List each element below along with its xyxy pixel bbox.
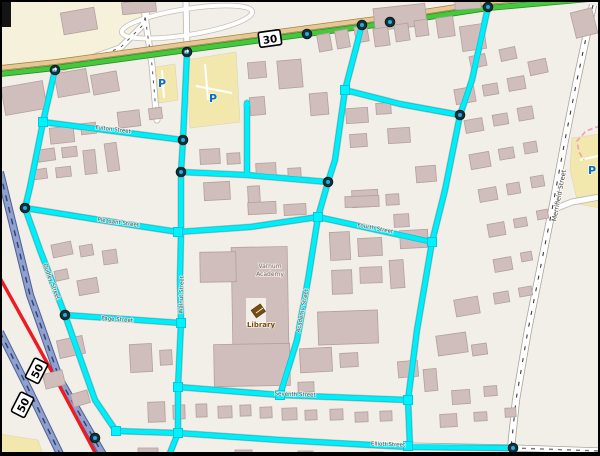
building bbox=[49, 126, 75, 144]
route-vertex-square[interactable] bbox=[174, 228, 183, 237]
building bbox=[388, 127, 411, 143]
building bbox=[330, 409, 343, 420]
building bbox=[436, 16, 456, 38]
building bbox=[394, 23, 410, 42]
building bbox=[129, 343, 152, 372]
building bbox=[148, 107, 162, 120]
building bbox=[200, 148, 221, 164]
library-label: Library bbox=[247, 321, 275, 329]
building bbox=[358, 237, 383, 256]
building bbox=[284, 203, 307, 215]
building bbox=[345, 195, 379, 207]
building bbox=[493, 291, 510, 304]
route-node-core[interactable] bbox=[23, 206, 27, 210]
route-node-core[interactable] bbox=[511, 446, 515, 450]
building bbox=[506, 182, 521, 195]
route-node-core[interactable] bbox=[360, 23, 364, 27]
map-viewport[interactable]: Fulton StreetPleasant StreetPage StreetW… bbox=[0, 0, 600, 456]
building bbox=[469, 151, 491, 169]
building bbox=[523, 141, 538, 154]
building bbox=[507, 76, 526, 92]
building bbox=[355, 412, 368, 422]
building bbox=[90, 71, 119, 95]
building bbox=[520, 251, 532, 262]
route-vertex-square[interactable] bbox=[341, 86, 350, 95]
building bbox=[56, 166, 72, 178]
building bbox=[83, 149, 97, 174]
parking-icon: P bbox=[158, 77, 166, 90]
building bbox=[498, 147, 515, 160]
building bbox=[484, 386, 498, 397]
academy-building bbox=[214, 343, 291, 386]
route-node-core[interactable] bbox=[486, 5, 490, 9]
route-vertex-square[interactable] bbox=[174, 429, 183, 438]
route-node-core[interactable] bbox=[326, 180, 330, 184]
building bbox=[415, 165, 436, 183]
building bbox=[454, 296, 481, 317]
map-canvas[interactable]: Fulton StreetPleasant StreetPage StreetW… bbox=[0, 0, 600, 456]
building bbox=[505, 408, 516, 418]
building bbox=[530, 175, 545, 188]
building bbox=[536, 209, 548, 220]
building bbox=[346, 107, 369, 123]
building bbox=[350, 133, 368, 147]
building bbox=[389, 260, 405, 289]
building bbox=[518, 286, 532, 297]
building bbox=[464, 118, 484, 134]
academy-building bbox=[200, 252, 237, 283]
building bbox=[360, 267, 383, 284]
academy-name-line2: Academy bbox=[256, 271, 284, 278]
academy-name-line1: Varnum bbox=[258, 263, 281, 270]
route-node-core[interactable] bbox=[305, 32, 309, 36]
building bbox=[386, 194, 400, 206]
building bbox=[102, 249, 118, 265]
building bbox=[376, 102, 392, 114]
building bbox=[204, 181, 231, 200]
route-vertex-square[interactable] bbox=[404, 396, 413, 405]
building bbox=[54, 269, 69, 281]
route-node-core[interactable] bbox=[181, 138, 185, 142]
building bbox=[340, 353, 359, 368]
building bbox=[317, 33, 333, 52]
building bbox=[452, 389, 471, 404]
route-vertex-square[interactable] bbox=[177, 319, 186, 328]
building bbox=[249, 96, 266, 115]
parking-icon: P bbox=[588, 164, 596, 177]
shield-number: 30 bbox=[262, 33, 278, 47]
building bbox=[117, 110, 141, 129]
building bbox=[317, 310, 378, 345]
building bbox=[513, 217, 527, 228]
building bbox=[373, 27, 390, 47]
building bbox=[394, 214, 410, 228]
building bbox=[493, 257, 513, 273]
building bbox=[436, 332, 468, 356]
route-node-core[interactable] bbox=[93, 436, 97, 440]
street-name-label: Elliott Street bbox=[371, 441, 406, 448]
route-node-core[interactable] bbox=[179, 170, 183, 174]
building bbox=[260, 407, 272, 418]
building bbox=[218, 406, 232, 418]
image-border-bottom bbox=[0, 452, 600, 456]
building bbox=[492, 113, 509, 126]
building bbox=[277, 59, 303, 89]
building bbox=[62, 146, 78, 158]
building bbox=[148, 402, 166, 423]
building bbox=[332, 270, 353, 295]
building bbox=[160, 350, 173, 366]
building bbox=[380, 411, 392, 421]
building bbox=[329, 231, 350, 260]
building bbox=[196, 404, 207, 417]
building bbox=[298, 382, 314, 393]
building bbox=[440, 414, 458, 428]
building bbox=[517, 106, 534, 121]
building bbox=[335, 29, 351, 49]
building bbox=[305, 410, 317, 420]
route-vertex-square[interactable] bbox=[39, 118, 48, 127]
building bbox=[478, 187, 498, 203]
route-vertex-square[interactable] bbox=[174, 383, 183, 392]
building bbox=[474, 412, 487, 422]
highway-shield: 30 bbox=[258, 30, 282, 48]
route-node-core[interactable] bbox=[458, 113, 462, 117]
parking-icon: P bbox=[209, 92, 217, 105]
building bbox=[227, 153, 241, 165]
building bbox=[79, 244, 94, 257]
building bbox=[54, 68, 90, 97]
building bbox=[282, 408, 297, 421]
building bbox=[77, 277, 99, 295]
building bbox=[471, 343, 487, 356]
building bbox=[247, 61, 266, 79]
building bbox=[309, 92, 329, 115]
building bbox=[423, 368, 438, 391]
route-node-core[interactable] bbox=[388, 20, 392, 24]
building bbox=[487, 222, 506, 238]
academy-building bbox=[231, 247, 289, 348]
building bbox=[414, 19, 429, 37]
building bbox=[248, 201, 277, 214]
route-vertex-square[interactable] bbox=[428, 238, 437, 247]
building bbox=[482, 83, 499, 96]
building bbox=[240, 405, 251, 416]
building bbox=[299, 347, 332, 373]
route-vertex-square[interactable] bbox=[314, 213, 323, 222]
route-node-core[interactable] bbox=[63, 313, 67, 317]
route-vertex-square[interactable] bbox=[112, 427, 121, 436]
